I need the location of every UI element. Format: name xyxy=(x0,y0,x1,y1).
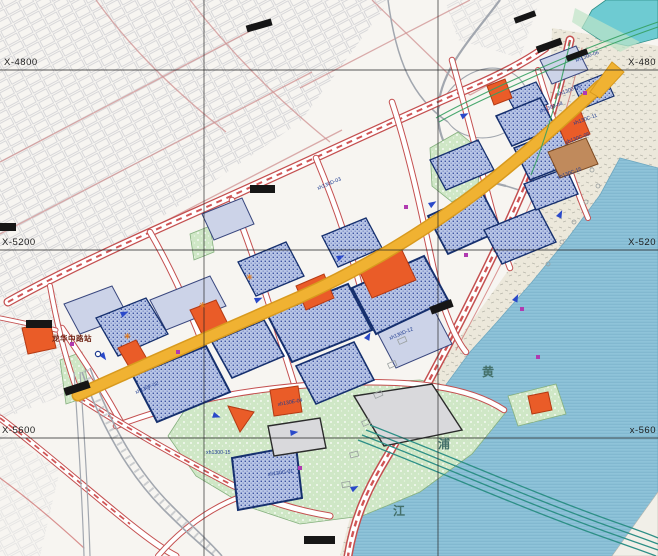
flower-icon: ✳ xyxy=(246,273,253,282)
flower-icon: ✳ xyxy=(124,332,131,341)
grid-label-left-2: X-5200 xyxy=(2,237,36,248)
parcel-orange xyxy=(528,392,552,414)
parcel-commercial xyxy=(232,446,302,510)
parcel-code: xh1300-15 xyxy=(206,450,231,456)
grid-label-right-2: X-520 xyxy=(628,237,656,248)
grid-label-left-3: X-5600 xyxy=(2,425,36,436)
grid-label-left-1: X-4800 xyxy=(4,57,38,68)
grid-label-right-1: X-480 xyxy=(628,57,656,68)
map-canvas: X-4800 X-5200 X-5600 X-480 X-520 x-560 ✳… xyxy=(0,0,658,556)
river-char-pu: 浦 xyxy=(438,436,450,451)
river-char-huang: 黄 xyxy=(482,364,494,379)
grid-label-right-3: x-560 xyxy=(630,425,656,436)
plan-map-svg: X-4800 X-5200 X-5600 X-480 X-520 x-560 ✳… xyxy=(0,0,658,556)
flower-icon: ✳ xyxy=(199,301,206,310)
station-label: 龙华中路站 xyxy=(52,333,92,343)
river-char-jiang: 江 xyxy=(393,503,405,518)
